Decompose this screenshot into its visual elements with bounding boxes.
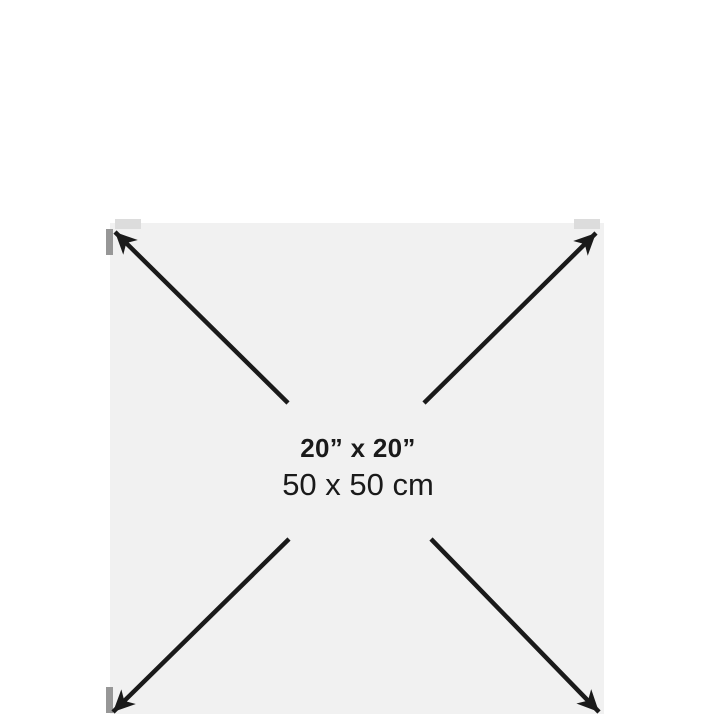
corner-marker-top-right-horizontal [574, 219, 600, 229]
corner-marker-bottom-left-vertical [106, 687, 113, 713]
size-guide-diagram: 20” x 20” 50 x 50 cm [0, 0, 716, 716]
size-diagram-graphics [0, 0, 716, 716]
corner-marker-top-left-horizontal [115, 219, 141, 229]
corner-marker-top-left-vertical [106, 229, 113, 255]
